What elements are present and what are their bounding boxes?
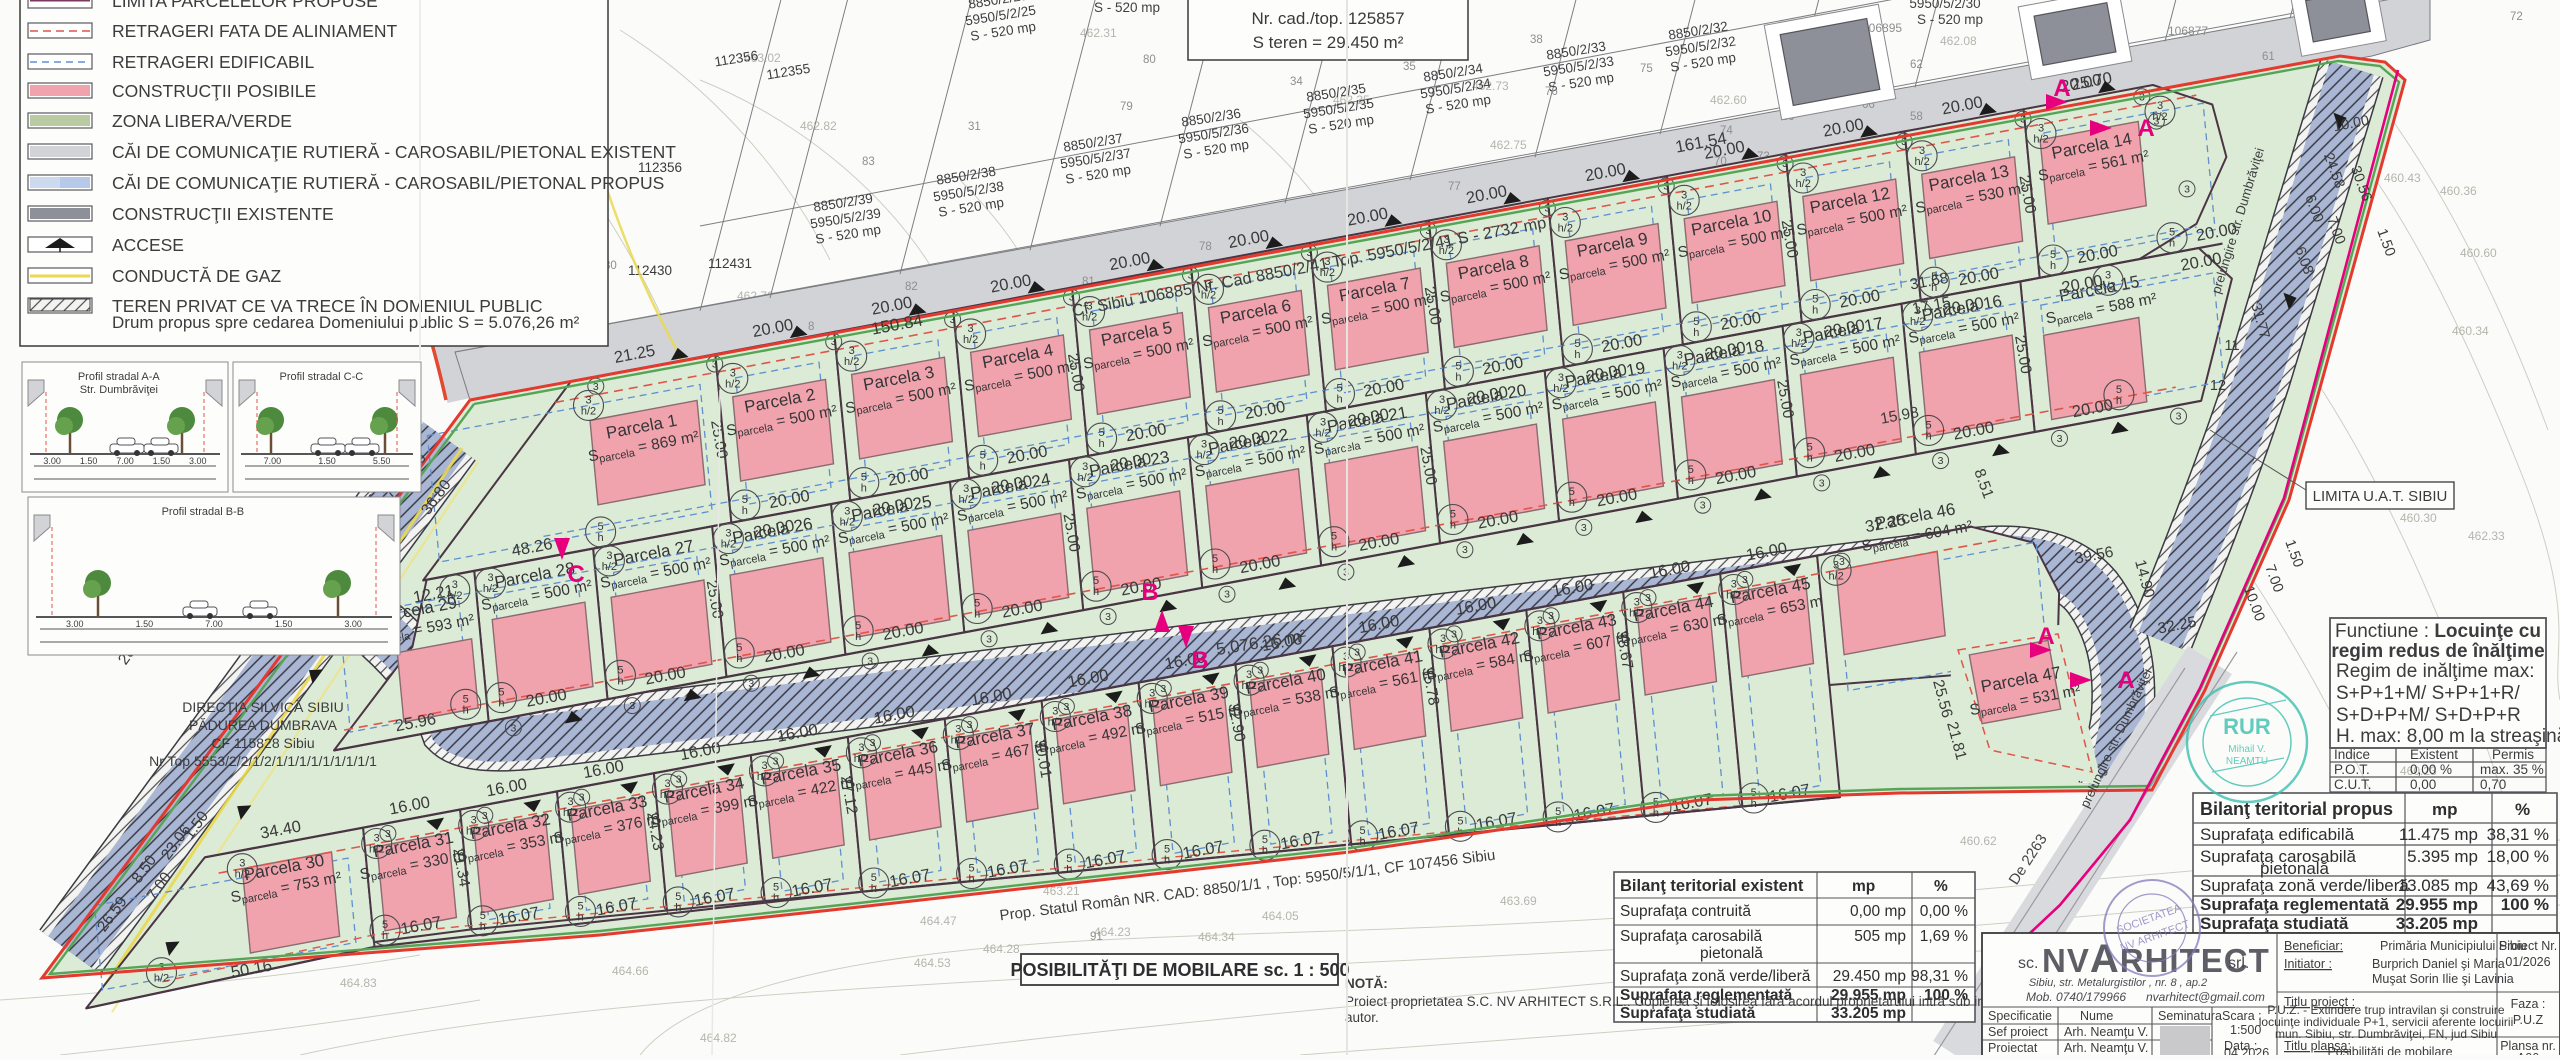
svg-text:h: h xyxy=(871,883,877,895)
svg-text:A: A xyxy=(2137,115,2154,142)
svg-text:77: 77 xyxy=(1448,181,1461,193)
svg-text:C.U.T.: C.U.T. xyxy=(2334,777,2372,792)
svg-text:H. max: 8,00 m la streaşină: H. max: 8,00 m la streaşină xyxy=(2336,726,2560,747)
svg-text:3.00: 3.00 xyxy=(189,456,207,466)
svg-text:72: 72 xyxy=(2510,11,2523,23)
svg-text:1.50: 1.50 xyxy=(318,456,336,466)
svg-text:3: 3 xyxy=(510,722,516,734)
svg-text:Suprafaţa carosabilă: Suprafaţa carosabilă xyxy=(1620,928,1763,945)
svg-text:0,00: 0,00 xyxy=(2410,777,2436,792)
svg-text:75: 75 xyxy=(1640,63,1653,75)
svg-text:autor.: autor. xyxy=(1345,1010,1379,1025)
svg-text:C: C xyxy=(567,561,584,588)
svg-text:Suprafaţa reglementată: Suprafaţa reglementată xyxy=(2200,895,2389,914)
svg-text:S teren = 29.450 m²: S teren = 29.450 m² xyxy=(1253,33,1404,52)
svg-text:ACCESE: ACCESE xyxy=(112,235,184,255)
svg-text:h: h xyxy=(1066,864,1072,876)
svg-text:3: 3 xyxy=(1257,665,1263,677)
svg-text:7.00: 7.00 xyxy=(205,619,223,629)
svg-text:h/2: h/2 xyxy=(757,771,772,783)
svg-text:Suprafaţa zonă verde/liberă: Suprafaţa zonă verde/liberă xyxy=(2200,876,2409,895)
svg-text:h: h xyxy=(1164,855,1170,867)
svg-text:Beneficiar:: Beneficiar: xyxy=(2284,939,2343,953)
svg-text:Profil stradal B-B: Profil stradal B-B xyxy=(162,506,245,518)
svg-text:A: A xyxy=(2053,75,2070,102)
svg-text:106895: 106895 xyxy=(1862,21,1902,35)
svg-text:Faza :: Faza : xyxy=(2511,997,2546,1011)
svg-text:h/2: h/2 xyxy=(844,356,859,368)
svg-text:Suprafaţa zonă verde/liberă: Suprafaţa zonă verde/liberă xyxy=(1620,968,1811,985)
svg-text:h/2: h/2 xyxy=(581,405,596,417)
svg-text:CF 115828 Sibiu: CF 115828 Sibiu xyxy=(211,735,314,751)
svg-text:3: 3 xyxy=(2176,411,2182,423)
svg-text:3: 3 xyxy=(2057,433,2063,445)
svg-text:h/2: h/2 xyxy=(725,378,740,390)
svg-text:Mihail V.: Mihail V. xyxy=(2228,744,2265,755)
svg-text:3: 3 xyxy=(1105,611,1111,623)
svg-text:h/2: h/2 xyxy=(1078,472,1093,484)
svg-text:Nr. cad./top. 125857: Nr. cad./top. 125857 xyxy=(1251,9,1404,28)
svg-text:112431: 112431 xyxy=(708,256,752,271)
svg-text:h/2: h/2 xyxy=(951,735,966,747)
svg-text:A06: A06 xyxy=(2517,1051,2539,1055)
svg-text:sc.: sc. xyxy=(2018,955,2038,972)
svg-text:h: h xyxy=(1688,475,1694,487)
svg-text:Burprich Daniel şi Maria: Burprich Daniel şi Maria xyxy=(2372,957,2505,971)
svg-text:h: h xyxy=(1926,430,1932,442)
svg-text:S - 520 mp: S - 520 mp xyxy=(1917,12,1983,27)
svg-text:h/2: h/2 xyxy=(854,753,869,765)
svg-text:h: h xyxy=(463,704,469,716)
svg-text:h: h xyxy=(1336,394,1342,406)
svg-text:h: h xyxy=(1455,371,1461,383)
svg-text:h/2: h/2 xyxy=(563,807,578,819)
svg-text:29.450 mp: 29.450 mp xyxy=(1833,968,1906,985)
svg-text:3: 3 xyxy=(867,656,873,668)
svg-text:78: 78 xyxy=(1199,241,1212,253)
svg-text:h: h xyxy=(480,921,486,933)
svg-text:3: 3 xyxy=(629,700,635,712)
svg-text:h: h xyxy=(1574,349,1580,361)
svg-text:h/2: h/2 xyxy=(483,583,498,595)
svg-text:h/2: h/2 xyxy=(1434,405,1449,417)
svg-text:0,00 %: 0,00 % xyxy=(2410,762,2452,777)
svg-text:3: 3 xyxy=(986,633,992,645)
svg-text:POSIBILITĂŢI DE MOBILARE sc.: POSIBILITĂŢI DE MOBILARE sc. 1 : 500 xyxy=(1010,959,1349,980)
svg-text:462.82: 462.82 xyxy=(800,119,837,133)
svg-text:S+P+1+M/ S+P+1+R/: S+P+1+M/ S+P+1+R/ xyxy=(2336,683,2521,704)
svg-text:Indice: Indice xyxy=(2334,747,2370,762)
svg-text:%: % xyxy=(2515,800,2530,819)
svg-text:13.085 mp: 13.085 mp xyxy=(2398,876,2478,895)
svg-text:76: 76 xyxy=(1545,86,1558,98)
svg-text:h/2: h/2 xyxy=(466,825,481,837)
svg-text:h: h xyxy=(382,930,388,942)
svg-text:Specificatie: Specificatie xyxy=(1988,1009,2052,1023)
svg-text:464.47: 464.47 xyxy=(920,914,957,928)
svg-text:h/2: h/2 xyxy=(840,516,855,528)
svg-text:464.66: 464.66 xyxy=(612,964,649,978)
svg-text:1.50: 1.50 xyxy=(80,456,98,466)
svg-text:B: B xyxy=(1141,579,1158,606)
svg-text:h: h xyxy=(498,698,504,710)
svg-text:LIMITA PARCELELOR PROPUSE: LIMITA PARCELELOR PROPUSE xyxy=(112,0,378,11)
svg-text:1:500: 1:500 xyxy=(2230,1023,2261,1037)
svg-text:460.34: 460.34 xyxy=(2452,324,2489,338)
svg-text:Nume: Nume xyxy=(2080,1009,2113,1023)
svg-text:29.955 mp: 29.955 mp xyxy=(2396,895,2478,914)
svg-text:7.00: 7.00 xyxy=(116,456,134,466)
svg-text:Bilanţ teritorial existent: Bilanţ teritorial existent xyxy=(1620,877,1804,895)
svg-text:3.00: 3.00 xyxy=(43,456,61,466)
svg-text:h/2: h/2 xyxy=(154,973,169,985)
svg-text:Drum propus spre cedarea Domen: Drum propus spre cedarea Domeniului publ… xyxy=(112,313,580,332)
svg-text:max. 35 %: max. 35 % xyxy=(2480,762,2544,777)
svg-text:3: 3 xyxy=(482,810,488,822)
svg-text:462.08: 462.08 xyxy=(1940,34,1977,48)
svg-text:3: 3 xyxy=(1451,628,1457,640)
svg-text:505 mp: 505 mp xyxy=(1854,928,1906,945)
svg-text:Sibiu, str. Metalurgistilor ,: Sibiu, str. Metalurgistilor , nr. 8 , ap… xyxy=(2029,977,2207,989)
svg-text:460.60: 460.60 xyxy=(2460,246,2497,260)
svg-text:h: h xyxy=(2169,238,2175,250)
svg-text:3: 3 xyxy=(1938,455,1944,467)
svg-text:3: 3 xyxy=(385,828,391,840)
svg-text:h/2: h/2 xyxy=(660,789,675,801)
svg-text:3: 3 xyxy=(967,719,973,731)
svg-text:Profil stradal C-C: Profil stradal C-C xyxy=(279,371,363,383)
svg-text:3: 3 xyxy=(1343,567,1349,579)
svg-text:11.475 mp: 11.475 mp xyxy=(2399,825,2478,844)
svg-text:3: 3 xyxy=(1700,500,1706,512)
svg-text:3: 3 xyxy=(1742,574,1748,586)
svg-text:NOTĂ:: NOTĂ: xyxy=(1345,976,1388,991)
svg-text:A: A xyxy=(2117,667,2134,694)
svg-text:460.36: 460.36 xyxy=(2440,184,2477,198)
svg-text:3.00: 3.00 xyxy=(344,619,362,629)
svg-text:P.O.T.: P.O.T. xyxy=(2334,762,2370,777)
svg-text:1,69 %: 1,69 % xyxy=(1920,928,1968,945)
svg-text:%: % xyxy=(1934,878,1948,895)
svg-text:34: 34 xyxy=(1290,76,1303,88)
svg-text:464.82: 464.82 xyxy=(700,1031,737,1045)
svg-text:38,31 %: 38,31 % xyxy=(2487,825,2549,844)
svg-text:h: h xyxy=(1807,453,1813,465)
svg-text:h/2: h/2 xyxy=(1315,427,1330,439)
svg-text:Arh. Neamţu V.: Arh. Neamţu V. xyxy=(2064,1041,2148,1055)
svg-text:1.50: 1.50 xyxy=(153,456,171,466)
svg-text:Suprafaţa edificabilă: Suprafaţa edificabilă xyxy=(2200,825,2355,844)
svg-text:Str. Dumbrăviţei: Str. Dumbrăviţei xyxy=(80,384,158,396)
svg-text:3: 3 xyxy=(748,678,754,690)
svg-text:A: A xyxy=(2037,623,2054,650)
svg-text:h: h xyxy=(1693,327,1699,339)
svg-text:3: 3 xyxy=(1544,203,1550,215)
svg-text:1.50: 1.50 xyxy=(275,619,293,629)
svg-text:h/2: h/2 xyxy=(1558,223,1573,235)
svg-text:8: 8 xyxy=(808,321,814,333)
svg-text:h/2: h/2 xyxy=(1532,626,1547,638)
svg-text:mp: mp xyxy=(2432,800,2458,819)
svg-text:h/2: h/2 xyxy=(1145,698,1160,710)
svg-text:RUR: RUR xyxy=(2223,714,2271,739)
svg-text:3: 3 xyxy=(1160,683,1166,695)
svg-text:Proiectat: Proiectat xyxy=(1988,1041,2038,1055)
svg-text:Suprafaţa studiată: Suprafaţa studiată xyxy=(2200,914,2349,933)
svg-text:h: h xyxy=(675,902,681,914)
svg-text:h: h xyxy=(773,893,779,905)
svg-text:3: 3 xyxy=(1063,701,1069,713)
svg-text:100 %: 100 % xyxy=(2501,895,2549,914)
svg-text:LIMITA U.A.T. SIBIU: LIMITA U.A.T. SIBIU xyxy=(2313,488,2448,505)
svg-text:h/2: h/2 xyxy=(721,539,736,551)
svg-text:h/2: h/2 xyxy=(1914,156,1929,168)
svg-text:98,31 %: 98,31 % xyxy=(1911,968,1968,985)
svg-text:91: 91 xyxy=(1090,931,1103,943)
svg-text:CONSTRUCŢII POSIBILE: CONSTRUCŢII POSIBILE xyxy=(112,81,316,101)
svg-text:80: 80 xyxy=(1143,54,1156,66)
svg-text:Scara :: Scara : xyxy=(2222,1009,2262,1023)
svg-text:1.50: 1.50 xyxy=(136,619,154,629)
svg-text:Permis: Permis xyxy=(2492,747,2534,762)
svg-text:CĂI DE COMUNICAŢIE RUTIERĂ - C: CĂI DE COMUNICAŢIE RUTIERĂ - CAROSABIL/P… xyxy=(112,142,676,162)
svg-text:h: h xyxy=(598,532,604,544)
svg-text:3.00: 3.00 xyxy=(66,619,84,629)
svg-text:0,00 mp: 0,00 mp xyxy=(1850,903,1906,920)
svg-text:31: 31 xyxy=(968,121,981,133)
svg-text:464.53: 464.53 xyxy=(914,956,951,970)
svg-text:h: h xyxy=(861,483,867,495)
svg-text:Initiator :: Initiator : xyxy=(2284,957,2332,971)
svg-text:h/2: h/2 xyxy=(602,561,617,573)
svg-text:h: h xyxy=(2050,260,2056,272)
svg-text:464.83: 464.83 xyxy=(340,976,377,990)
svg-text:regim redus de înălţime: regim redus de înălţime xyxy=(2331,641,2544,662)
svg-text:h: h xyxy=(855,631,861,643)
svg-text:h/2: h/2 xyxy=(2033,134,2048,146)
svg-text:Functiune : Locuinţe cu: Functiune : Locuinţe cu xyxy=(2335,621,2541,642)
svg-text:464.34: 464.34 xyxy=(1198,930,1235,944)
svg-text:h/2: h/2 xyxy=(1726,590,1741,602)
svg-text:04.2026: 04.2026 xyxy=(2224,1046,2269,1055)
svg-text:Bilanţ teritorial propus: Bilanţ teritorial propus xyxy=(2200,799,2393,819)
svg-text:Nr Top 5553/2/2/1/2/1/1/1/1/1/: Nr Top 5553/2/2/1/2/1/1/1/1/1/1/1/1/1 xyxy=(149,753,377,769)
svg-text:11: 11 xyxy=(2224,338,2239,354)
svg-text:3: 3 xyxy=(1819,477,1825,489)
svg-text:h/2: h/2 xyxy=(1677,200,1692,212)
svg-text:h: h xyxy=(1450,520,1456,532)
svg-text:Posibilităţi de mobilare: Posibilităţi de mobilare xyxy=(2327,1045,2452,1055)
svg-text:3: 3 xyxy=(1224,589,1230,601)
svg-text:h/2: h/2 xyxy=(1629,608,1644,620)
svg-text:Muşat Sorin Ilie şi Lavinia: Muşat Sorin Ilie şi Lavinia xyxy=(2372,972,2514,986)
svg-text:h: h xyxy=(577,911,583,923)
svg-text:h/2: h/2 xyxy=(235,869,250,881)
svg-text:3: 3 xyxy=(1839,556,1845,568)
svg-text:5.395 mp: 5.395 mp xyxy=(2407,847,2478,866)
svg-text:Profil stradal A-A: Profil stradal A-A xyxy=(78,371,161,383)
svg-text:h: h xyxy=(1218,416,1224,428)
svg-text:h: h xyxy=(1262,845,1268,857)
svg-text:h/2: h/2 xyxy=(1796,178,1811,190)
svg-text:h/2: h/2 xyxy=(1048,717,1063,729)
svg-text:h: h xyxy=(742,505,748,517)
svg-text:h: h xyxy=(736,653,742,665)
svg-text:RETRAGERI EDIFICABIL: RETRAGERI EDIFICABIL xyxy=(112,52,315,72)
svg-text:Existent: Existent xyxy=(2410,747,2458,762)
svg-text:h: h xyxy=(1653,807,1659,819)
svg-text:01/2026: 01/2026 xyxy=(2505,955,2550,969)
svg-text:h/2: h/2 xyxy=(1910,316,1925,328)
svg-text:460.30: 460.30 xyxy=(2400,511,2437,525)
svg-text:pietonală: pietonală xyxy=(1700,945,1763,962)
svg-text:18,00 %: 18,00 % xyxy=(2487,847,2549,866)
svg-text:61: 61 xyxy=(2262,51,2275,63)
svg-text:ZONA LIBERA/VERDE: ZONA LIBERA/VERDE xyxy=(112,111,292,131)
svg-text:P.U.Z: P.U.Z xyxy=(2513,1013,2544,1027)
svg-text:Regim de inălţime max:: Regim de inălţime max: xyxy=(2336,661,2535,682)
svg-text:0,00 %: 0,00 % xyxy=(1920,903,1968,920)
svg-text:S - 520 mp: S - 520 mp xyxy=(1094,0,1160,15)
svg-text:82: 82 xyxy=(905,281,918,293)
svg-text:3: 3 xyxy=(773,755,779,767)
svg-text:Arh. Neamţu V.: Arh. Neamţu V. xyxy=(2064,1025,2148,1039)
svg-text:h/2: h/2 xyxy=(1553,383,1568,395)
svg-text:h: h xyxy=(1093,586,1099,598)
svg-text:h: h xyxy=(1751,798,1757,810)
svg-text:h/2: h/2 xyxy=(1828,570,1843,582)
svg-text:3: 3 xyxy=(2184,183,2190,195)
svg-text:h: h xyxy=(617,675,623,687)
svg-text:464.05: 464.05 xyxy=(1262,909,1299,923)
svg-text:DIRECŢIA SILVICĂ SIBIU: DIRECŢIA SILVICĂ SIBIU xyxy=(182,699,344,715)
svg-text:CONSTRUCŢII EXISTENTE: CONSTRUCŢII EXISTENTE xyxy=(112,204,334,224)
svg-text:RETRAGERI FATA DE ALINIAMENT: RETRAGERI FATA DE ALINIAMENT xyxy=(112,21,398,41)
svg-text:Suprafaţa contruită: Suprafaţa contruită xyxy=(1620,903,1751,920)
svg-text:nvarhitect@gmail.com: nvarhitect@gmail.com xyxy=(2146,990,2265,1004)
svg-text:h/2: h/2 xyxy=(1241,680,1256,692)
svg-text:CĂI DE COMUNICAŢIE RUTIERĂ - C: CĂI DE COMUNICAŢIE RUTIERĂ - CAROSABIL/P… xyxy=(112,173,664,193)
svg-text:3: 3 xyxy=(676,774,682,786)
svg-text:h/2: h/2 xyxy=(369,844,384,856)
svg-text:Mob. 0740/179966: Mob. 0740/179966 xyxy=(2026,990,2126,1004)
svg-text:h: h xyxy=(974,609,980,621)
svg-text:CONDUCTĂ DE GAZ: CONDUCTĂ DE GAZ xyxy=(112,266,281,286)
svg-text:38: 38 xyxy=(1530,34,1543,46)
svg-text:58: 58 xyxy=(1910,111,1923,123)
svg-text:3: 3 xyxy=(1663,180,1669,192)
svg-text:h: h xyxy=(1099,438,1105,450)
svg-text:h/2: h/2 xyxy=(959,494,974,506)
svg-text:12: 12 xyxy=(2210,378,2226,394)
svg-text:Sef proiect: Sef proiect xyxy=(1988,1025,2048,1039)
svg-text:h/2: h/2 xyxy=(447,590,462,602)
svg-text:mp: mp xyxy=(1852,878,1875,895)
svg-text:3: 3 xyxy=(579,792,585,804)
svg-text:h: h xyxy=(1212,564,1218,576)
svg-text:7.00: 7.00 xyxy=(264,456,282,466)
svg-text:Seminatura: Seminatura xyxy=(2158,1009,2222,1023)
svg-text:PĂDUREA DUMBRAVA: PĂDUREA DUMBRAVA xyxy=(189,717,338,733)
svg-text:79: 79 xyxy=(1120,101,1133,113)
svg-text:h: h xyxy=(2116,395,2122,407)
svg-text:464.28: 464.28 xyxy=(983,942,1020,956)
svg-text:3: 3 xyxy=(1548,610,1554,622)
svg-text:3: 3 xyxy=(1581,522,1587,534)
svg-text:43,69 %: 43,69 % xyxy=(2487,876,2549,895)
svg-text:h: h xyxy=(1812,305,1818,317)
svg-text:106877: 106877 xyxy=(2168,24,2208,38)
svg-text:35: 35 xyxy=(1403,61,1416,73)
svg-text:srl.: srl. xyxy=(2228,955,2249,972)
svg-text:h: h xyxy=(1569,497,1575,509)
svg-text:5950/5/2/30: 5950/5/2/30 xyxy=(1909,0,1980,11)
svg-text:h: h xyxy=(980,460,986,472)
svg-text:5.50: 5.50 xyxy=(373,456,391,466)
svg-text:462.33: 462.33 xyxy=(2468,529,2505,543)
svg-text:462.60: 462.60 xyxy=(1710,93,1747,107)
svg-text:83: 83 xyxy=(862,156,875,168)
svg-text:62: 62 xyxy=(1910,59,1923,71)
svg-text:h/2: h/2 xyxy=(1672,361,1687,373)
svg-text:h/2: h/2 xyxy=(1791,338,1806,350)
svg-text:3: 3 xyxy=(1645,592,1651,604)
svg-text:h/2: h/2 xyxy=(1196,450,1211,462)
svg-text:Proiect Nr.: Proiect Nr. xyxy=(2499,939,2557,953)
svg-text:B: B xyxy=(1191,647,1208,674)
svg-text:462.75: 462.75 xyxy=(1490,138,1527,152)
svg-text:h/2: h/2 xyxy=(963,334,978,346)
svg-text:463.69: 463.69 xyxy=(1500,894,1537,908)
svg-text:3: 3 xyxy=(870,737,876,749)
svg-text:3: 3 xyxy=(1354,647,1360,659)
svg-text:h/2: h/2 xyxy=(2100,280,2115,292)
svg-text:h/2: h/2 xyxy=(1435,644,1450,656)
svg-text:0,70: 0,70 xyxy=(2480,777,2506,792)
svg-text:460.43: 460.43 xyxy=(2384,171,2421,185)
svg-text:h: h xyxy=(1331,542,1337,554)
svg-text:S+D+P+M/ S+D+P+R: S+D+P+M/ S+D+P+R xyxy=(2336,705,2521,726)
svg-text:3: 3 xyxy=(1462,544,1468,556)
svg-text:h: h xyxy=(969,874,975,886)
svg-text:33.205 mp: 33.205 mp xyxy=(2396,914,2478,933)
svg-text:460.62: 460.62 xyxy=(1960,834,1997,848)
